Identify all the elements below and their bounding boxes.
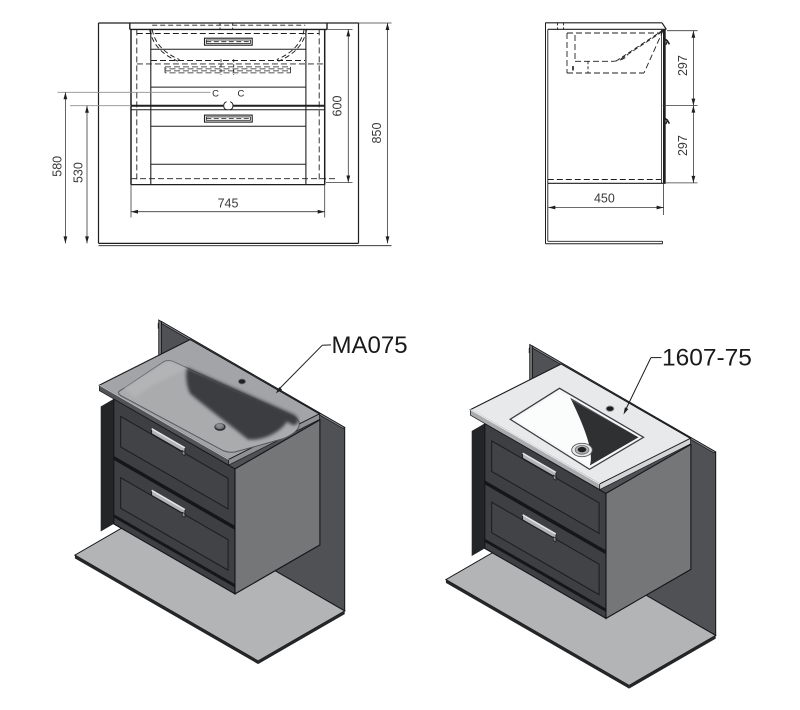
svg-text:MA075: MA075 <box>332 332 408 359</box>
svg-text:745: 745 <box>218 196 239 210</box>
svg-text:1607-75: 1607-75 <box>662 345 752 372</box>
svg-text:600: 600 <box>331 96 345 117</box>
svg-text:297: 297 <box>676 135 690 156</box>
svg-text:C: C <box>212 88 219 99</box>
svg-text:580: 580 <box>50 156 64 177</box>
svg-text:850: 850 <box>370 123 384 144</box>
svg-text:297: 297 <box>676 55 690 76</box>
svg-text:450: 450 <box>594 191 615 205</box>
svg-text:C: C <box>237 88 244 99</box>
svg-text:530: 530 <box>71 162 85 183</box>
